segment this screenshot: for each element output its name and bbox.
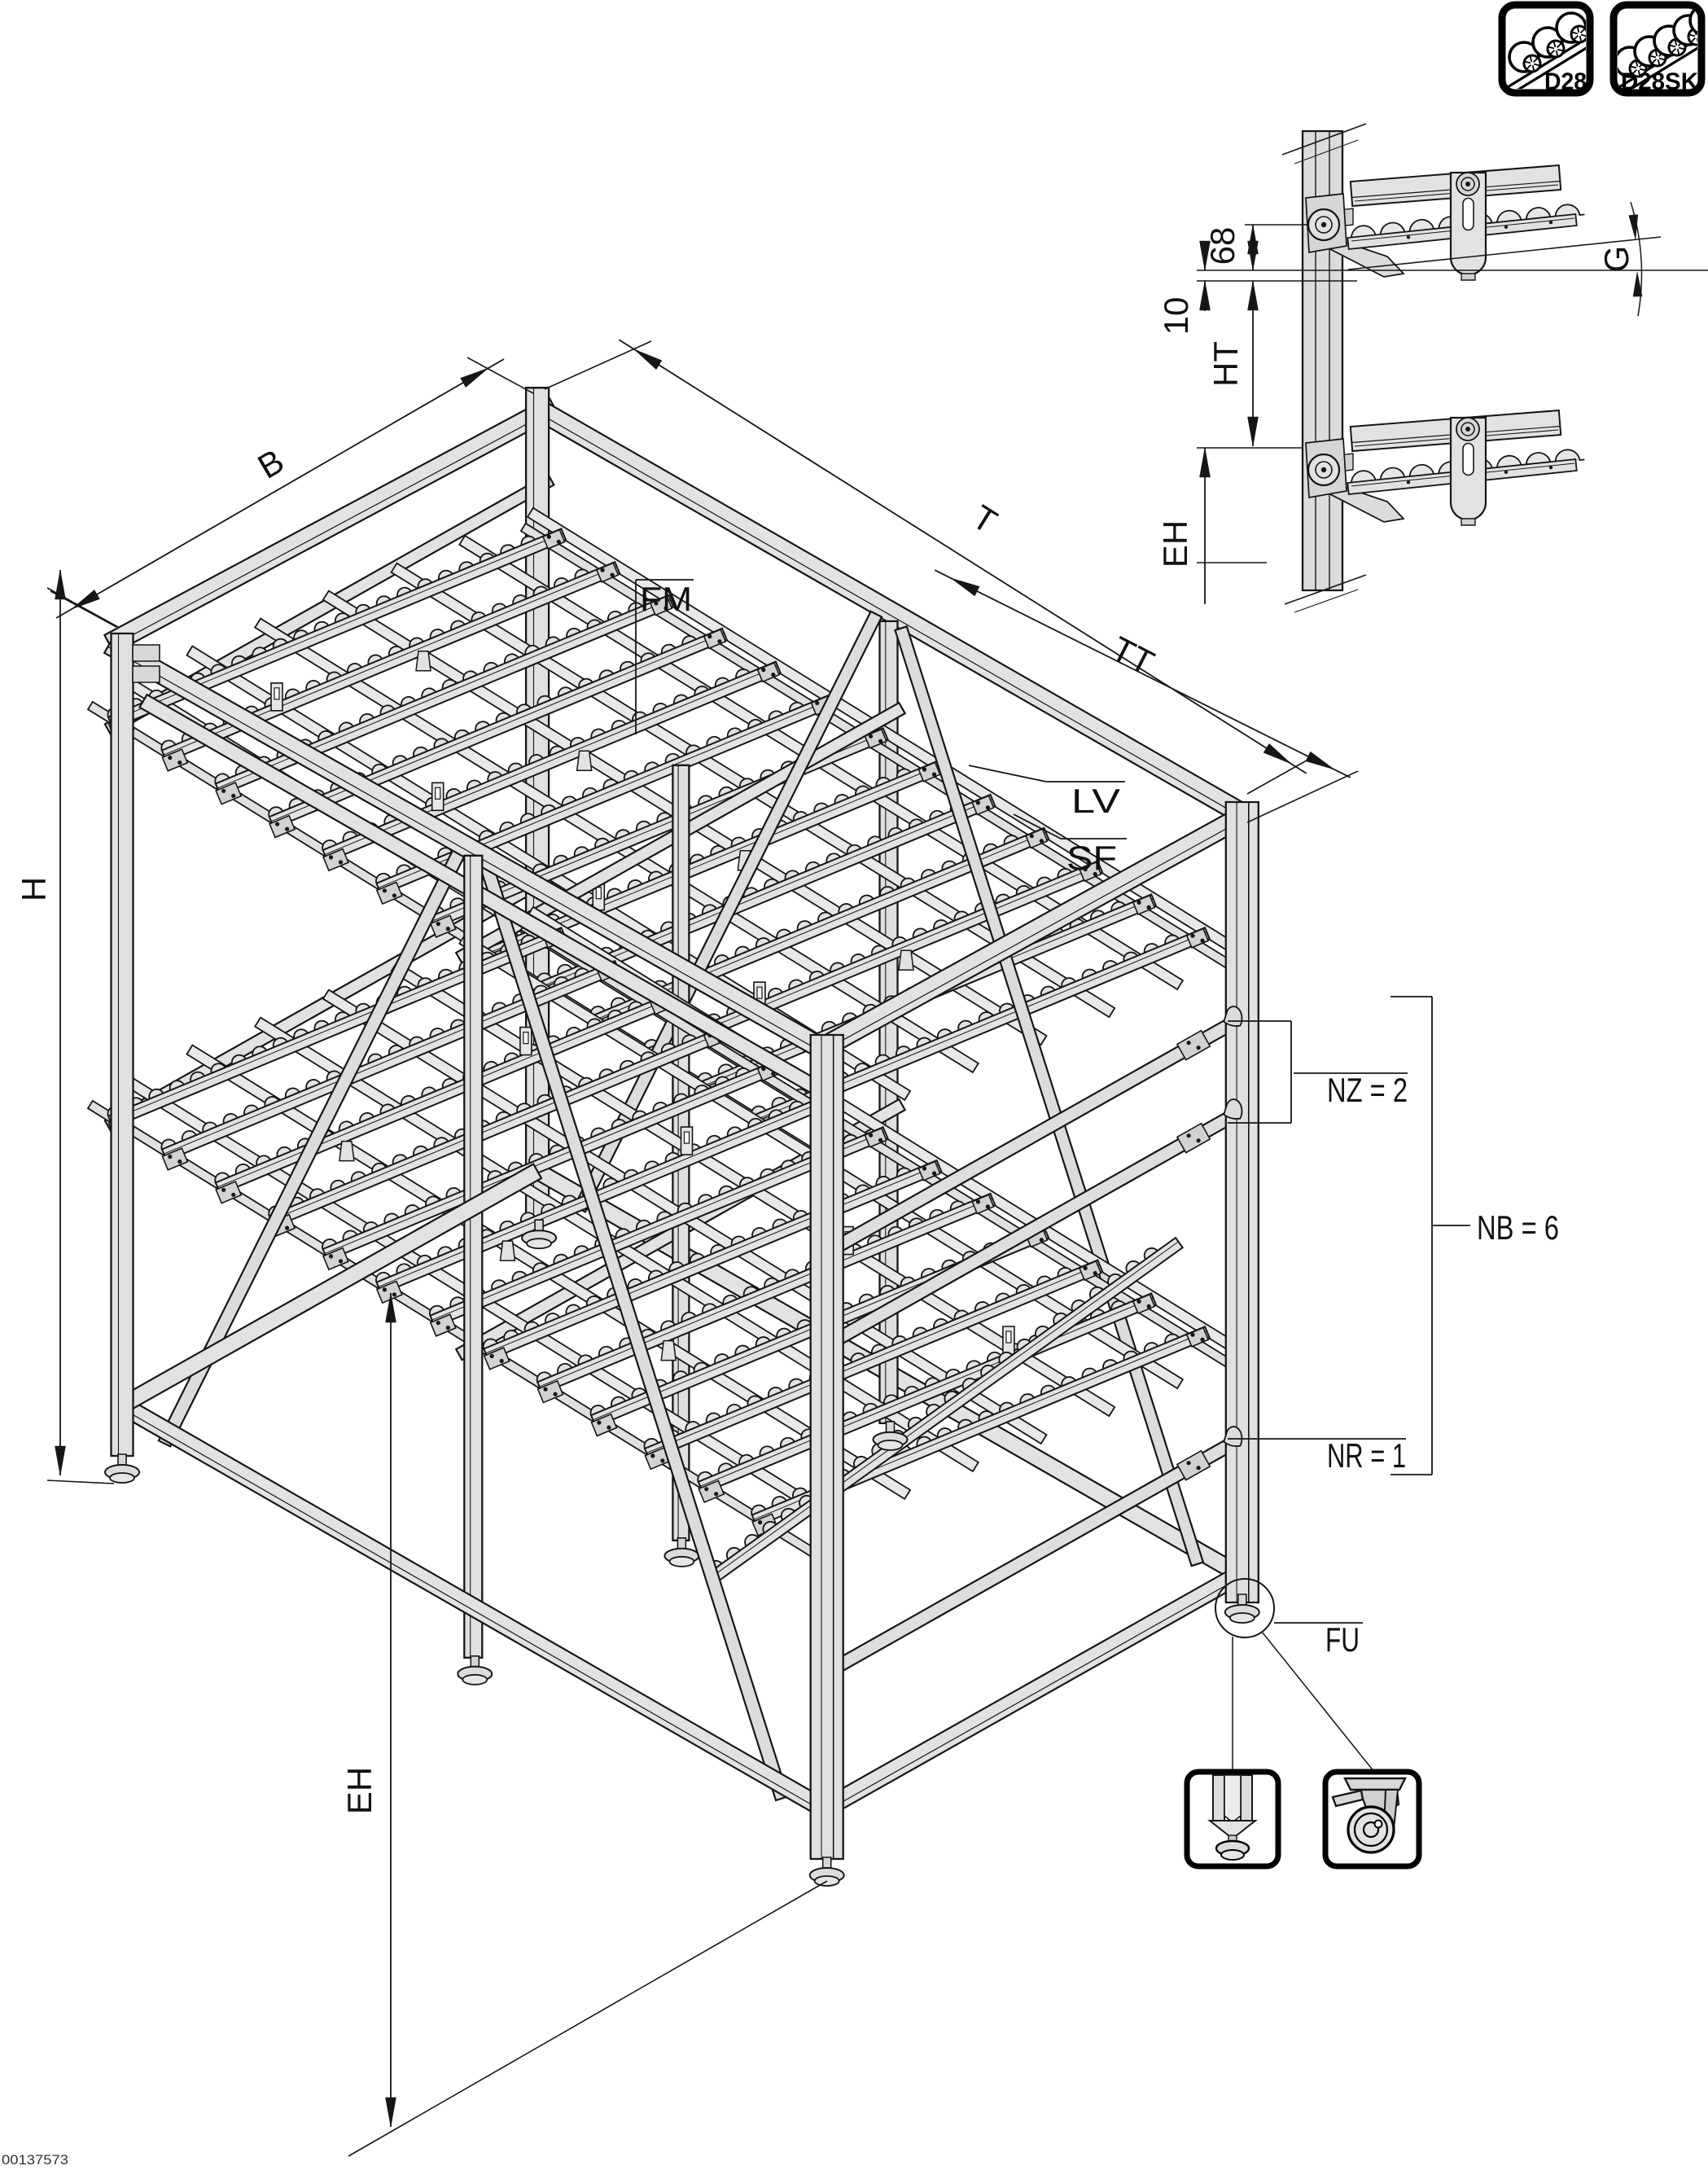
svg-text:D28: D28 (1544, 68, 1587, 95)
svg-text:10: 10 (1157, 297, 1195, 335)
svg-text:EH: EH (340, 1767, 379, 1814)
svg-text:EH: EH (1156, 520, 1194, 568)
svg-text:FM: FM (640, 580, 692, 618)
svg-text:HT: HT (1207, 341, 1245, 387)
svg-text:00137573: 00137573 (2, 2152, 68, 2168)
svg-text:NB = 6: NB = 6 (1477, 1208, 1559, 1247)
svg-text:FU: FU (1325, 1620, 1360, 1659)
svg-text:H: H (15, 877, 53, 901)
svg-text:D28SK: D28SK (1621, 68, 1698, 95)
svg-text:G: G (1597, 246, 1636, 273)
svg-text:NR = 1: NR = 1 (1327, 1436, 1406, 1475)
svg-text:NZ = 2: NZ = 2 (1327, 1071, 1408, 1109)
svg-text:LV: LV (1071, 782, 1120, 820)
svg-text:SF: SF (1066, 839, 1117, 877)
